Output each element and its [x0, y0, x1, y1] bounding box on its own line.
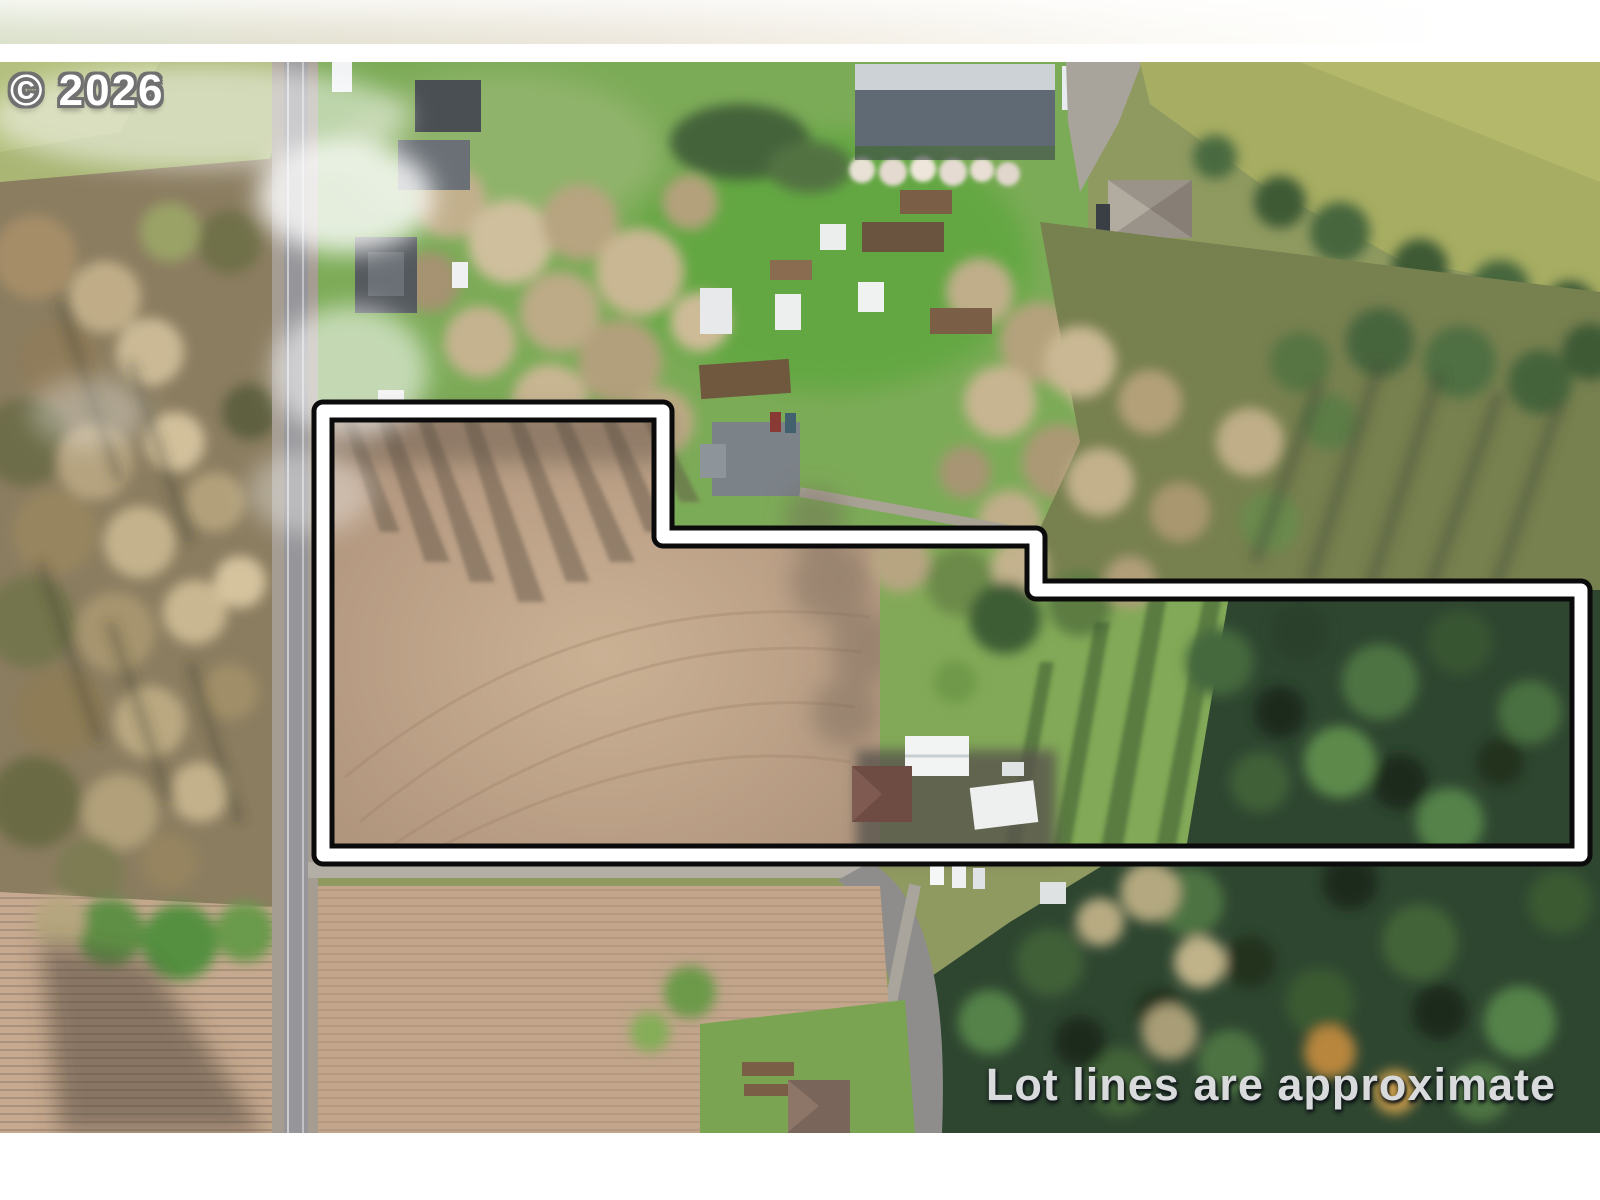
bottom-left-furrow-field	[0, 892, 280, 1133]
shed-white-3	[700, 288, 732, 334]
car-white	[452, 262, 468, 288]
south-field	[318, 886, 915, 1133]
shed-white-4	[775, 294, 801, 330]
car-white-3	[973, 868, 985, 889]
listing-photo-page: © 2026 Lot lines are approximate	[0, 0, 1600, 1200]
house-brown-roof	[852, 766, 912, 822]
lot-lines-disclaimer: Lot lines are approximate	[986, 1059, 1556, 1111]
house-east	[1096, 180, 1192, 238]
car-white-2	[952, 863, 966, 888]
shed-white-2	[858, 282, 884, 312]
aerial-scene	[0, 62, 1600, 1133]
shed-white-south	[970, 780, 1039, 829]
house-south	[788, 1080, 850, 1133]
copyright-watermark: © 2026	[10, 66, 165, 116]
shed-white-1	[820, 224, 846, 250]
homestead	[852, 736, 1056, 862]
previous-photo-sliver	[0, 0, 1600, 44]
outbuilding-south	[1040, 882, 1066, 904]
aerial-photo: © 2026 Lot lines are approximate	[0, 62, 1600, 1133]
house-roof-dark	[415, 80, 481, 132]
house-in-notch	[700, 412, 800, 496]
